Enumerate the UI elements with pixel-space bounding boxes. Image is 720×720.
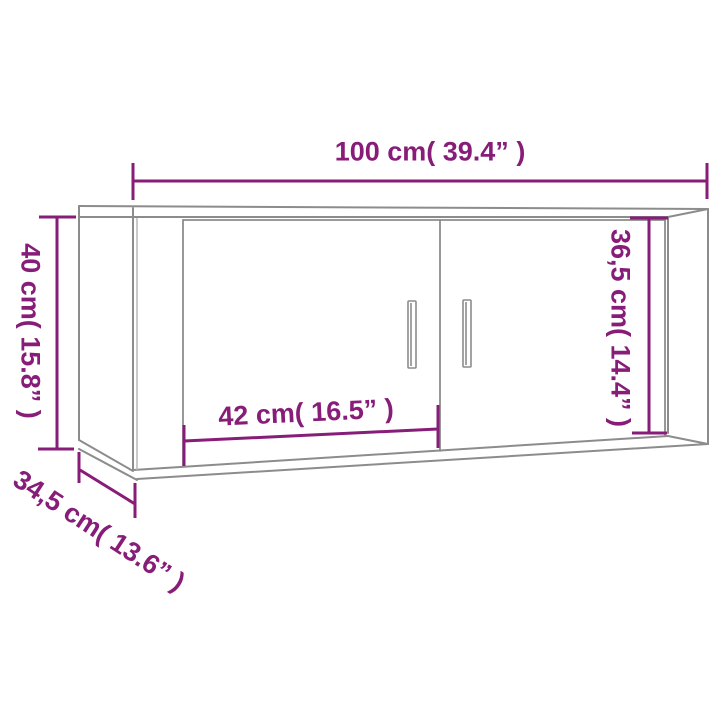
cabinet-bottom-left-upper-edge: [79, 440, 133, 471]
dimension-label-height: 40 cm( 15.8” ): [17, 243, 44, 419]
dimension-label-inner-height: 36,5 cm( 14.4” ): [607, 229, 634, 427]
cabinet-bottom-right-edge: [668, 436, 708, 444]
right-door-handle-bar: [463, 300, 471, 367]
dimension-inner-height-36-5cm: [630, 218, 668, 433]
cabinet-top-back-edge: [79, 206, 708, 209]
cabinet-top-right-edge: [668, 209, 708, 217]
left-door-handle: [408, 301, 416, 368]
right-door-handle: [463, 300, 471, 367]
dimension-width-100cm: [133, 163, 707, 200]
cabinet-bottom-back-edge: [137, 444, 708, 479]
dimension-label-width: 100 cm( 39.4” ): [335, 139, 526, 166]
left-door-handle-bar: [408, 301, 416, 368]
product-dimension-diagram: 100 cm( 39.4” ) 40 cm( 15.8” ) 36,5 cm( …: [0, 0, 720, 720]
